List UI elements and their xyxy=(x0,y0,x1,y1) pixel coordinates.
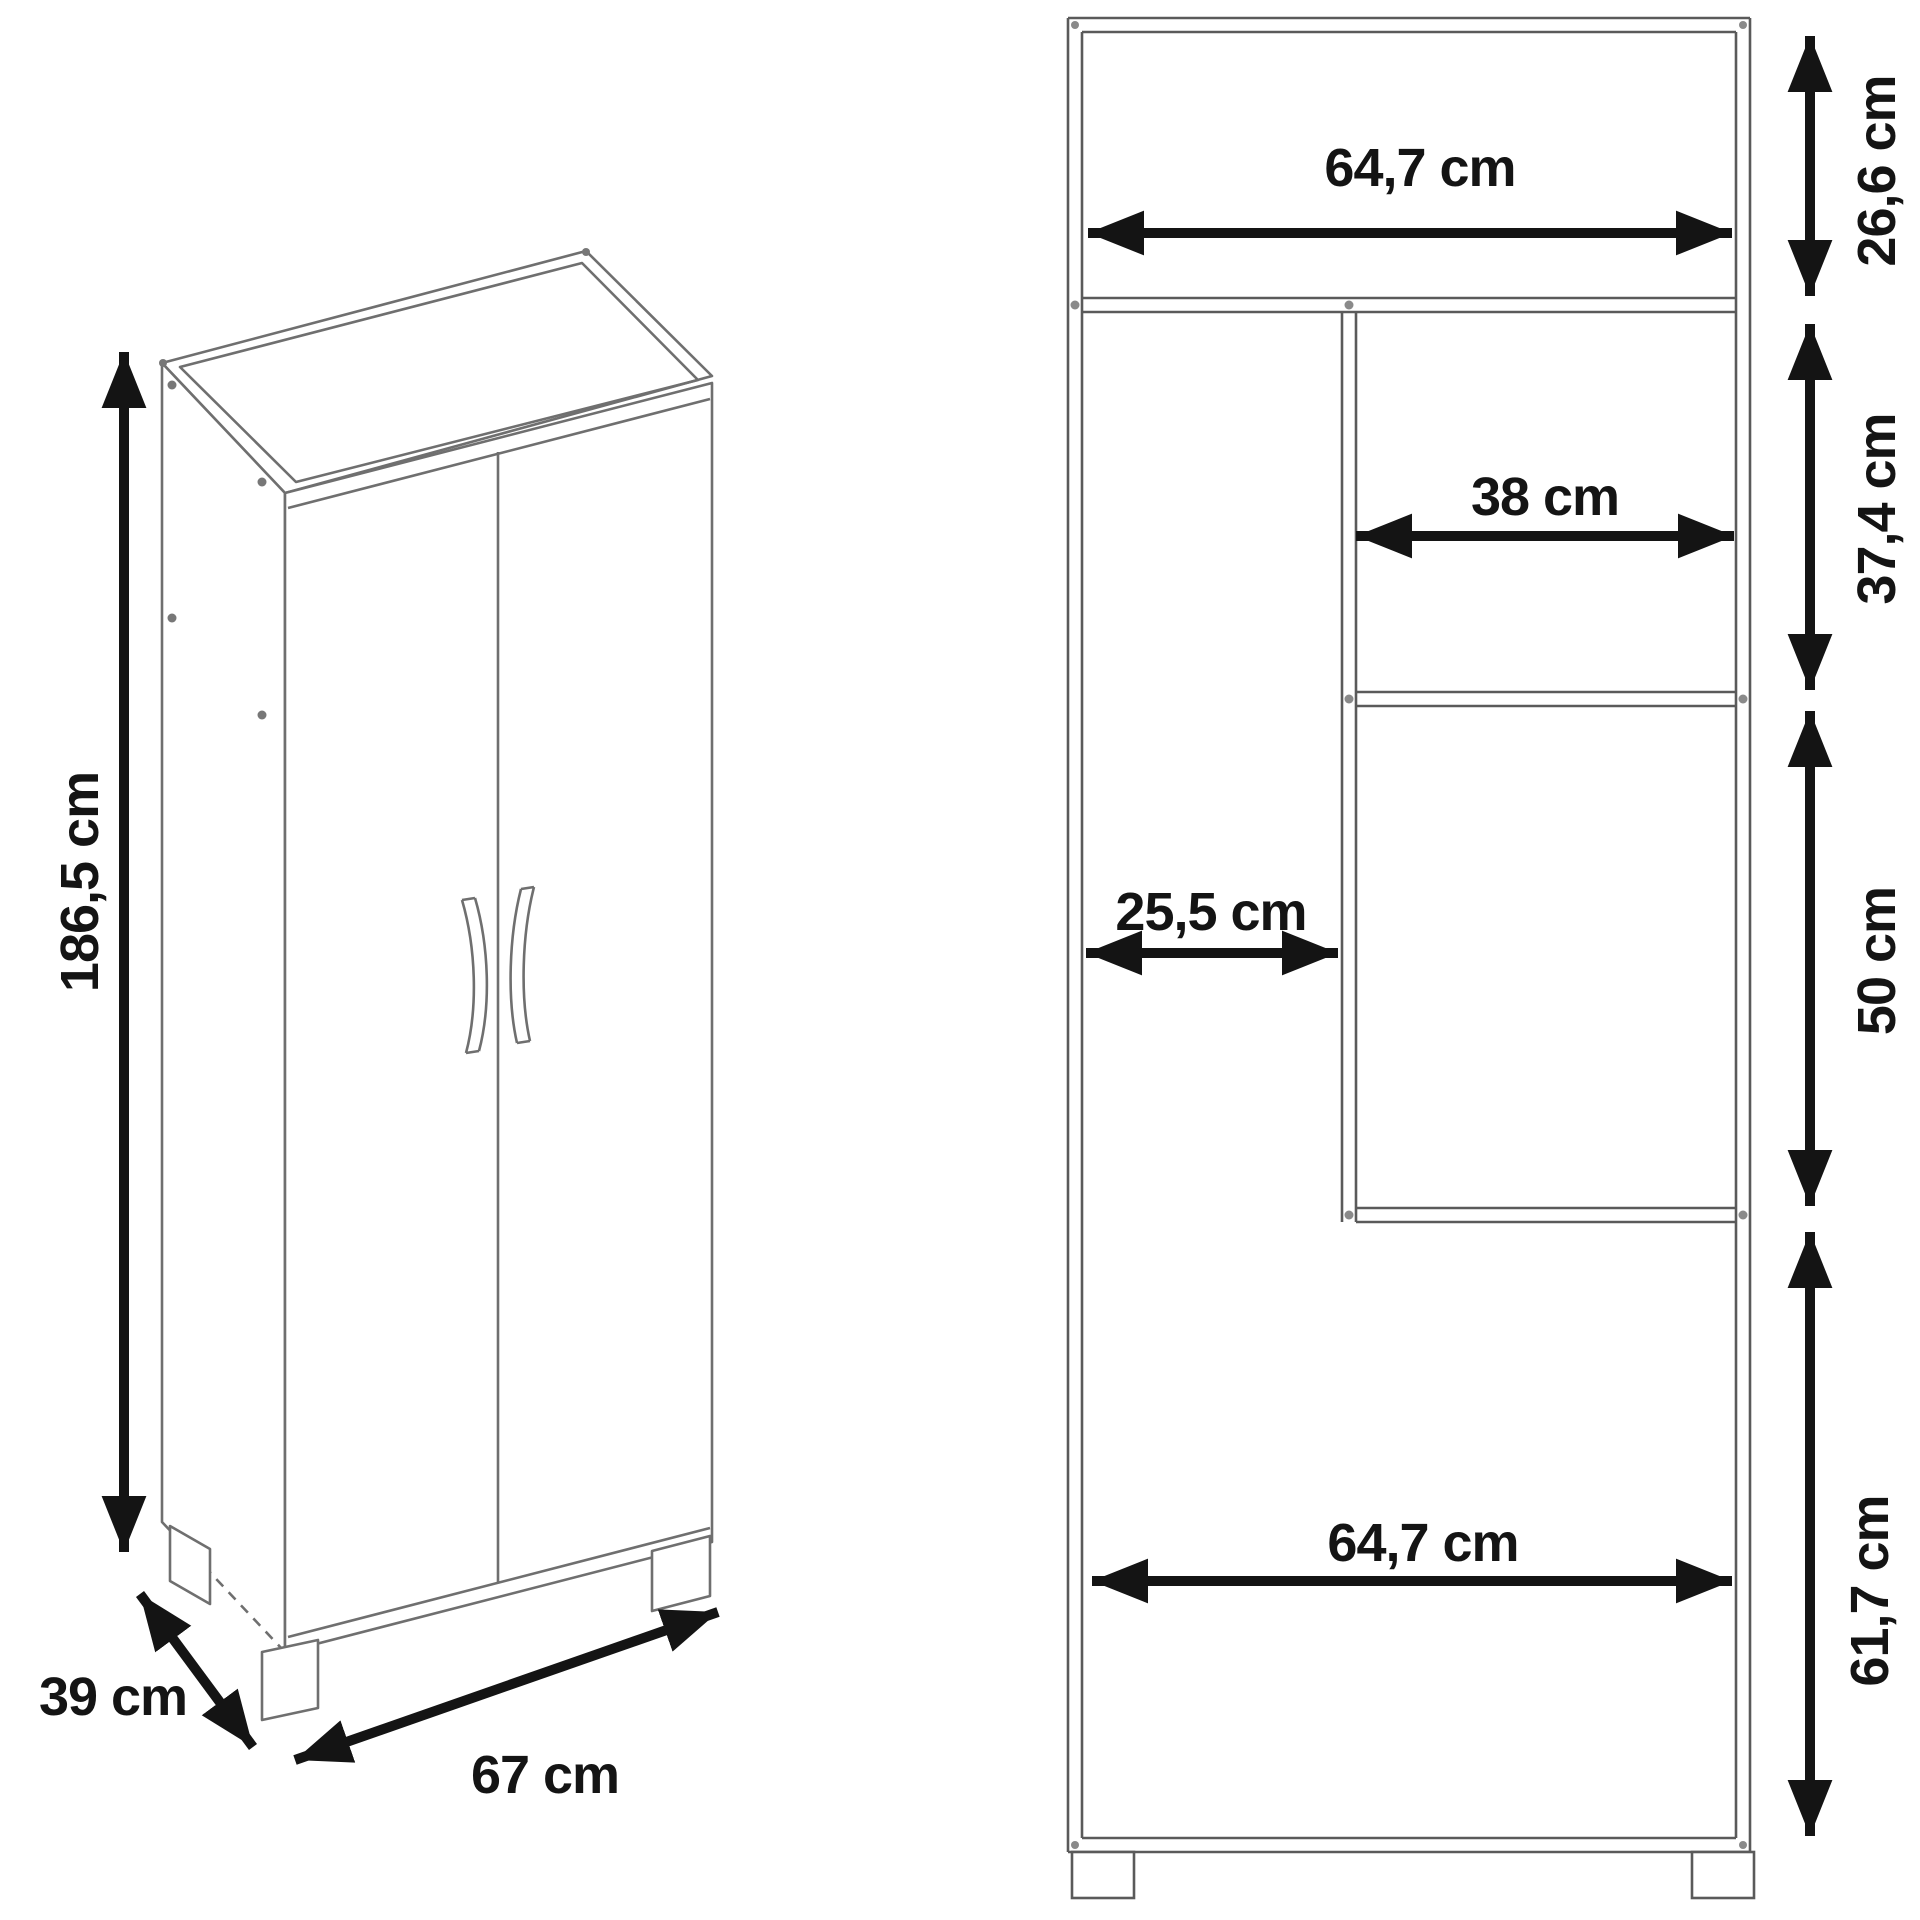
dim-label-right-upper-compartment-height: 37,4 cm xyxy=(1850,413,1904,604)
dim-label-left-compartment-width: 25,5 cm xyxy=(1115,885,1306,939)
top-shelf xyxy=(1082,298,1736,312)
front-view-right-foot xyxy=(1692,1852,1754,1898)
front-view-left-foot xyxy=(1072,1852,1134,1898)
bottom-panel xyxy=(1068,1838,1750,1852)
left-wall xyxy=(1068,18,1082,1852)
cabinet-side-panel xyxy=(162,363,285,1652)
dim-label-width: 67 cm xyxy=(471,1748,619,1802)
right-wall xyxy=(1736,18,1750,1852)
dim-label-height: 186,5 cm xyxy=(53,772,107,992)
right-lower-shelf xyxy=(1356,1208,1736,1222)
dim-label-top-shelf-width: 64,7 cm xyxy=(1324,141,1515,195)
dim-label-right-shelf-width: 38 cm xyxy=(1471,470,1619,524)
dim-label-bottom-compartment-width: 64,7 cm xyxy=(1327,1516,1518,1570)
front-left-foot xyxy=(262,1640,318,1720)
dim-label-bottom-compartment-height: 61,7 cm xyxy=(1843,1495,1897,1686)
top-panel xyxy=(1068,18,1750,32)
right-upper-shelf xyxy=(1356,692,1736,706)
dim-label-top-compartment-height: 26,6 cm xyxy=(1850,75,1904,266)
isometric-view xyxy=(159,248,712,1720)
dim-label-depth: 39 cm xyxy=(39,1670,187,1724)
vertical-divider xyxy=(1342,312,1356,1222)
dim-label-right-lower-compartment-height: 50 cm xyxy=(1850,887,1904,1035)
cabinet-technical-drawing: 186,5 cm 39 cm 67 cm 64,7 cm 26,6 cm 38 … xyxy=(0,0,1920,1920)
drawing-svg xyxy=(0,0,1920,1920)
